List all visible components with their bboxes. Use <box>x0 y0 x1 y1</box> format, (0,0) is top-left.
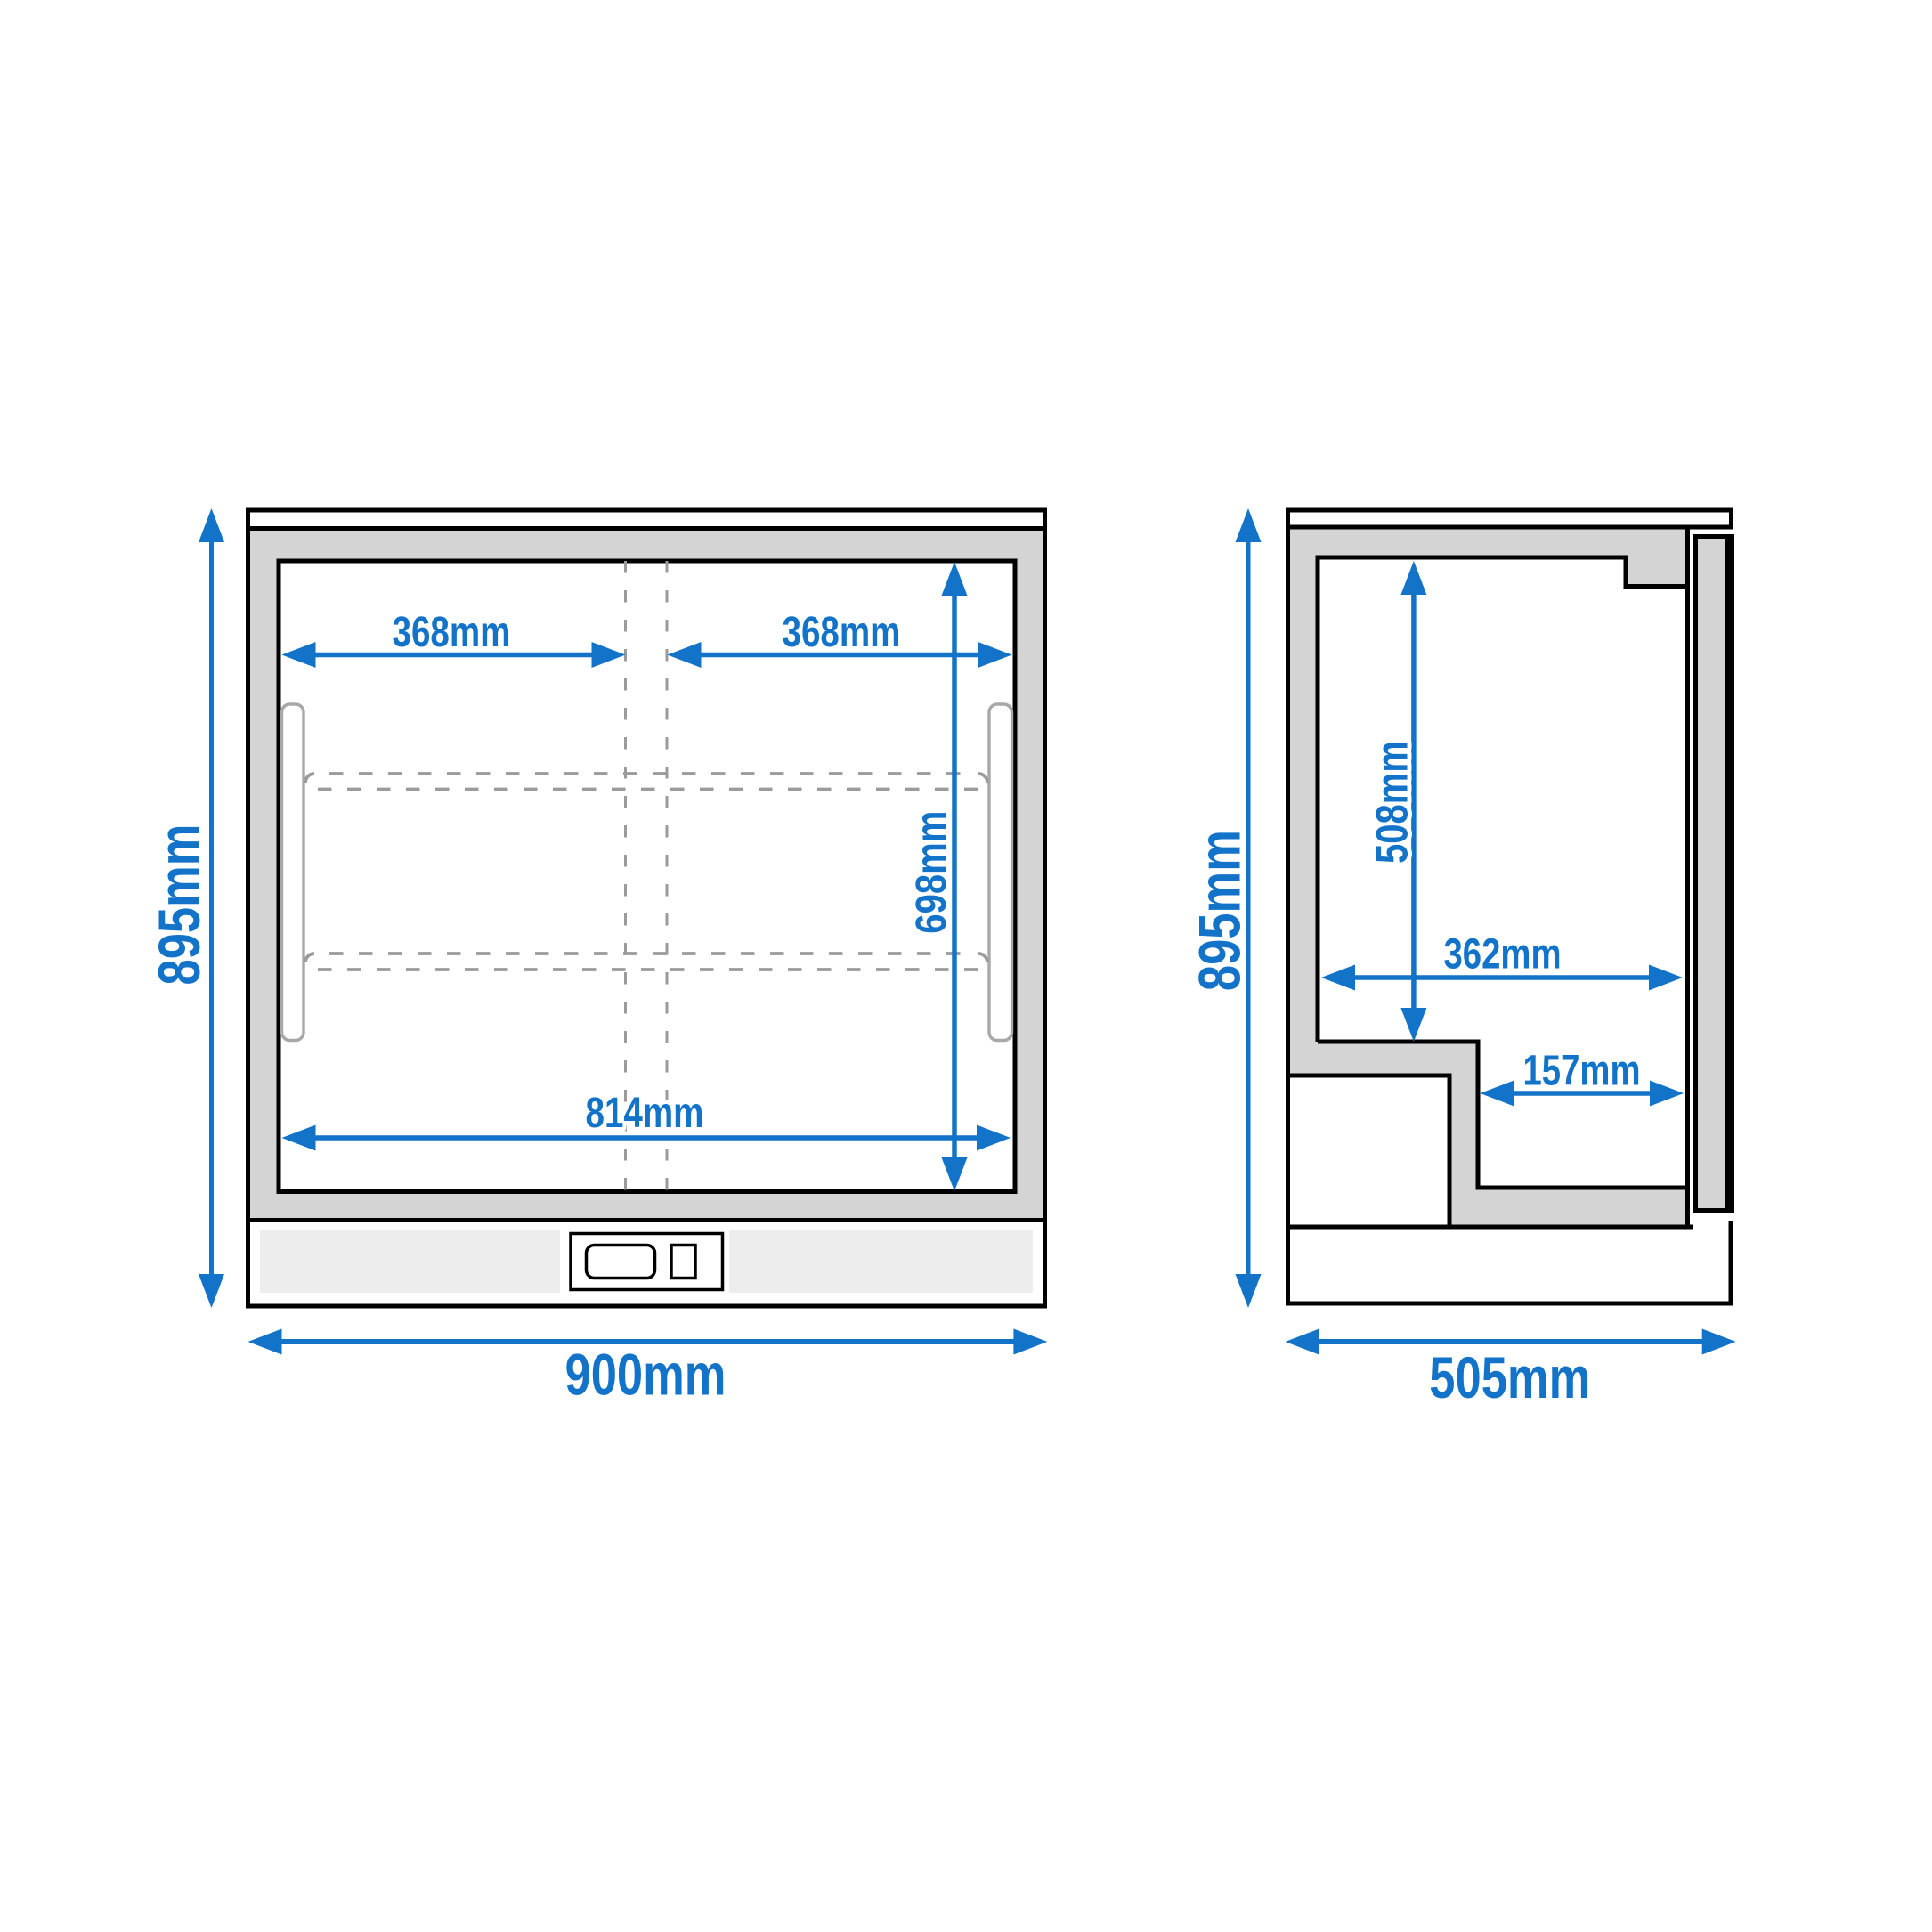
svg-text:157mm: 157mm <box>1523 1048 1641 1095</box>
svg-text:900mm: 900mm <box>565 1342 727 1408</box>
svg-text:362mm: 362mm <box>1444 931 1562 978</box>
svg-text:368mm: 368mm <box>783 609 901 656</box>
svg-text:368mm: 368mm <box>393 609 511 656</box>
svg-text:895mm: 895mm <box>146 824 212 986</box>
svg-text:508mm: 508mm <box>1368 741 1417 864</box>
svg-text:895mm: 895mm <box>1187 830 1253 991</box>
svg-text:814mm: 814mm <box>586 1090 704 1137</box>
svg-text:698mm: 698mm <box>908 811 955 934</box>
svg-text:505mm: 505mm <box>1429 1344 1590 1410</box>
